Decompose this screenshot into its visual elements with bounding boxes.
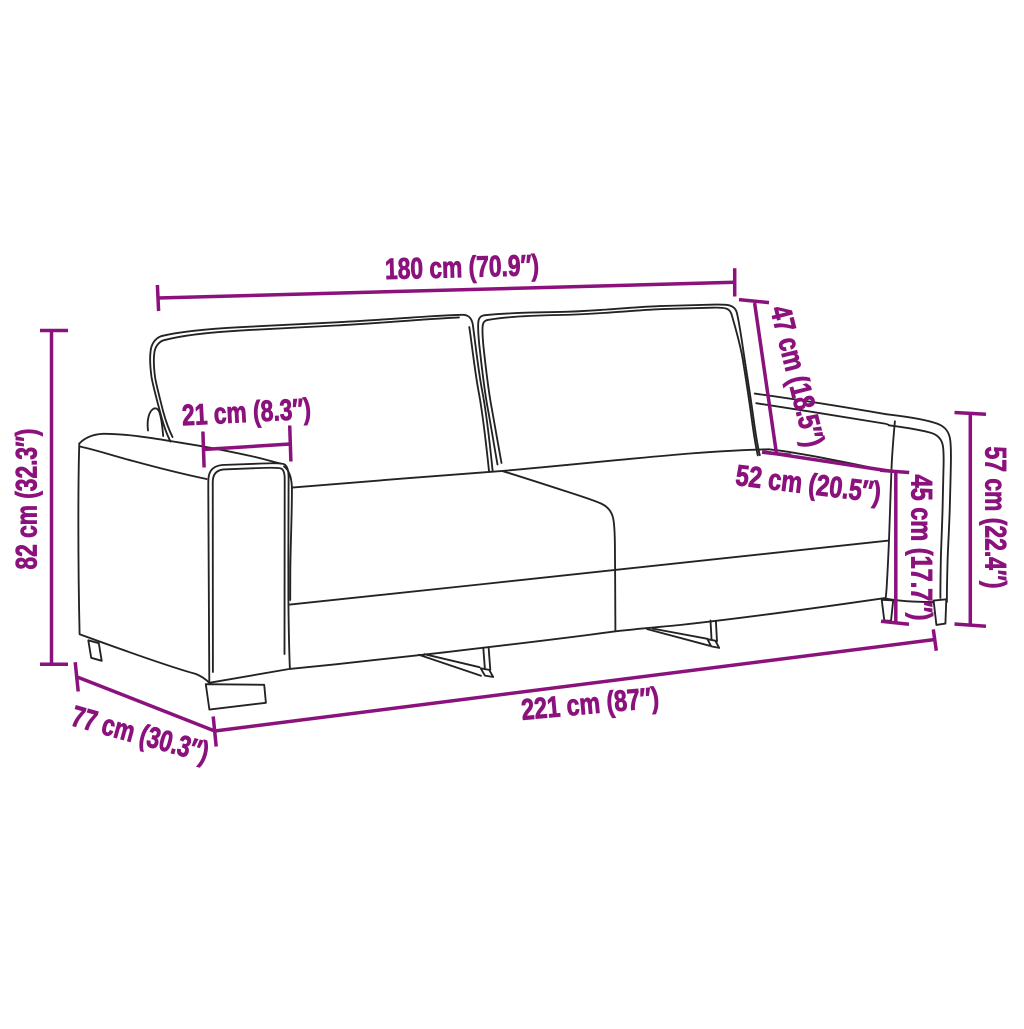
svg-text:57 cm (22.4″): 57 cm (22.4″) — [978, 447, 1011, 589]
svg-text:82 cm (32.3″): 82 cm (32.3″) — [11, 429, 44, 570]
svg-text:180 cm (70.9″): 180 cm (70.9″) — [385, 249, 540, 286]
svg-text:77 cm (30.3″): 77 cm (30.3″) — [68, 700, 213, 769]
svg-text:21 cm (8.3″): 21 cm (8.3″) — [181, 393, 312, 433]
svg-text:45 cm (17.7″): 45 cm (17.7″) — [904, 475, 937, 621]
